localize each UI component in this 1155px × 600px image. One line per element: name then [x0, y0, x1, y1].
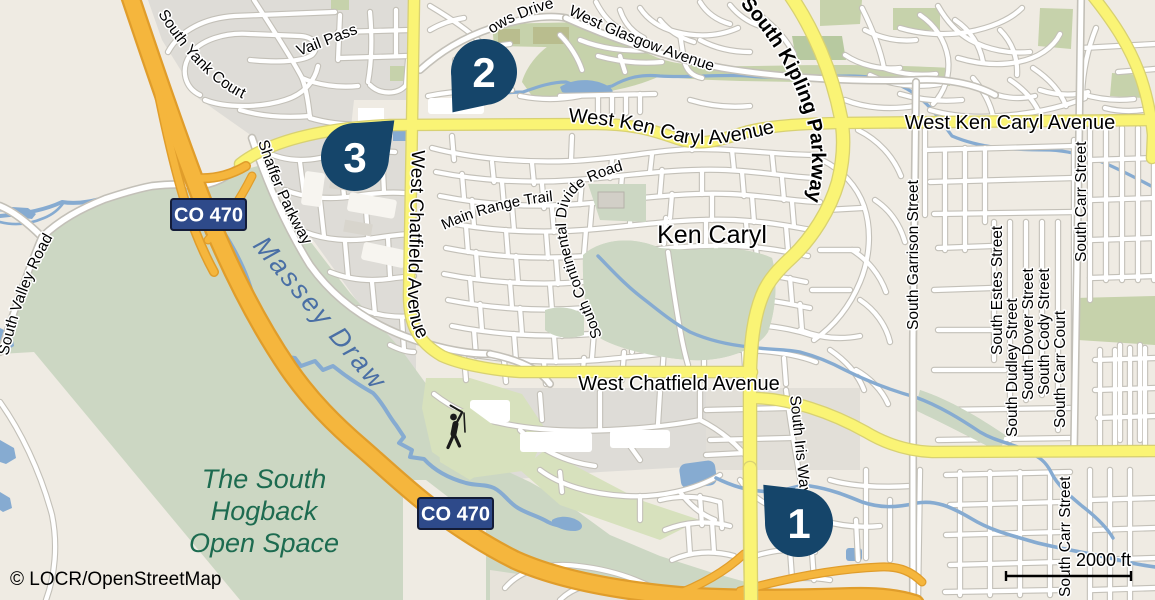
svg-text:© LOCR/OpenStreetMap: © LOCR/OpenStreetMap [10, 569, 221, 590]
svg-text:2: 2 [472, 49, 495, 96]
svg-text:West Chatfield Avenue: West Chatfield Avenue [578, 373, 780, 395]
svg-text:South Carr Street: South Carr Street [1073, 141, 1090, 262]
svg-text:South Carr Court: South Carr Court [1052, 310, 1069, 428]
svg-text:South Cody Street: South Cody Street [1036, 268, 1053, 395]
svg-text:The South: The South [202, 464, 327, 494]
svg-text:CO 470: CO 470 [421, 504, 490, 526]
svg-text:South Garrison Street: South Garrison Street [905, 179, 922, 330]
svg-text:CO 470: CO 470 [174, 205, 243, 227]
svg-text:2000 ft: 2000 ft [1076, 550, 1131, 570]
svg-text:South Carr Street: South Carr Street [1057, 476, 1074, 597]
svg-text:3: 3 [343, 134, 366, 181]
svg-text:Hogback: Hogback [211, 496, 319, 526]
svg-text:Open Space: Open Space [189, 528, 339, 558]
svg-text:West Ken Caryl Avenue: West Ken Caryl Avenue [905, 112, 1116, 134]
svg-text:South Dudley Street: South Dudley Street [1004, 298, 1021, 437]
svg-text:South Dover Street: South Dover Street [1020, 267, 1037, 400]
svg-text:Ken Caryl: Ken Caryl [657, 221, 767, 249]
svg-text:1: 1 [787, 500, 810, 547]
